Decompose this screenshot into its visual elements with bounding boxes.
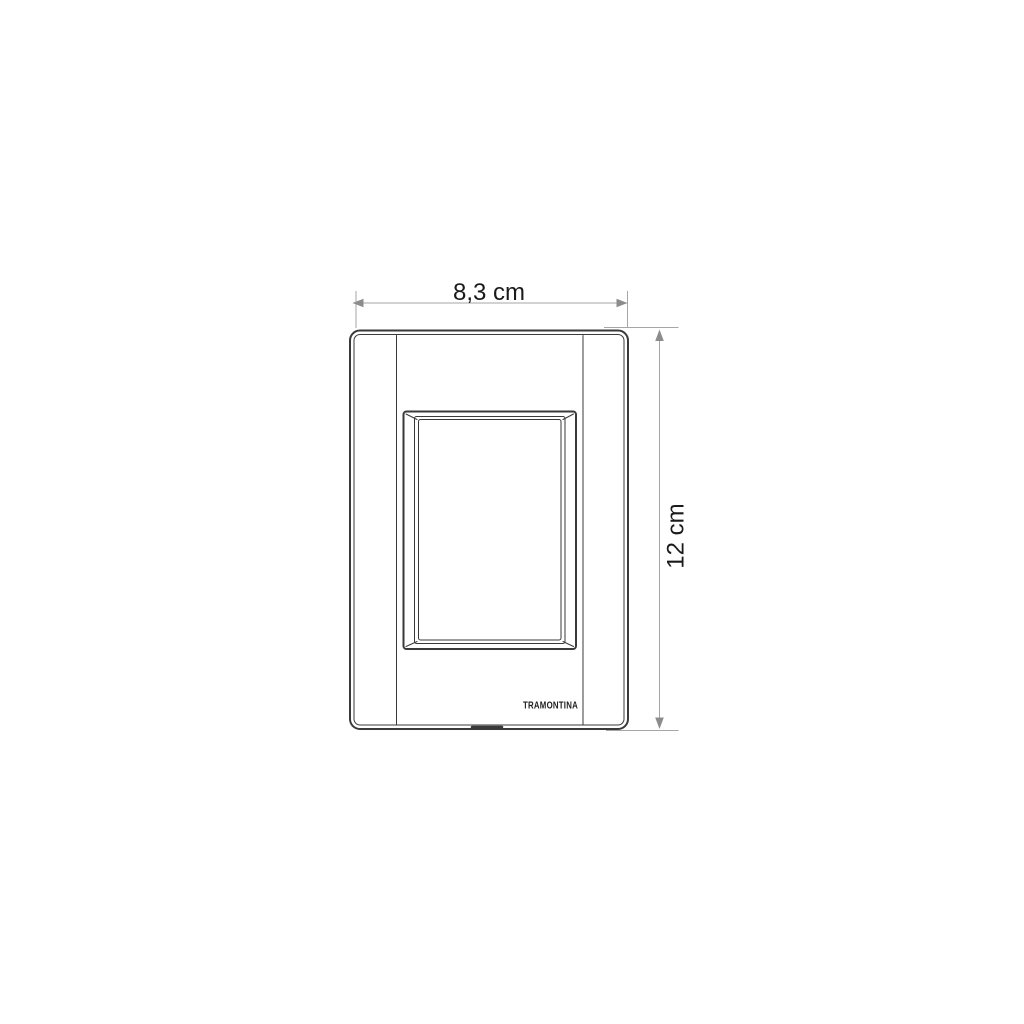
height-arrow-up (655, 330, 664, 342)
height-arrow-down (655, 718, 664, 730)
height-dimension-label: 12 cm (663, 503, 690, 568)
wall-plate-drawing (350, 331, 628, 730)
brand-logo-text: TRAMONTINA (523, 700, 578, 712)
opening-outer-frame (404, 412, 577, 650)
width-dimension-label: 8,3 cm (453, 279, 525, 306)
width-arrow-right (617, 299, 628, 308)
wall-plate-dimension-drawing: TRAMONTINA 8,3 cm 12 cm (0, 0, 1024, 1024)
width-arrow-left (353, 299, 364, 308)
product-dimension-diagram: TRAMONTINA 8,3 cm 12 cm (0, 0, 1024, 1024)
